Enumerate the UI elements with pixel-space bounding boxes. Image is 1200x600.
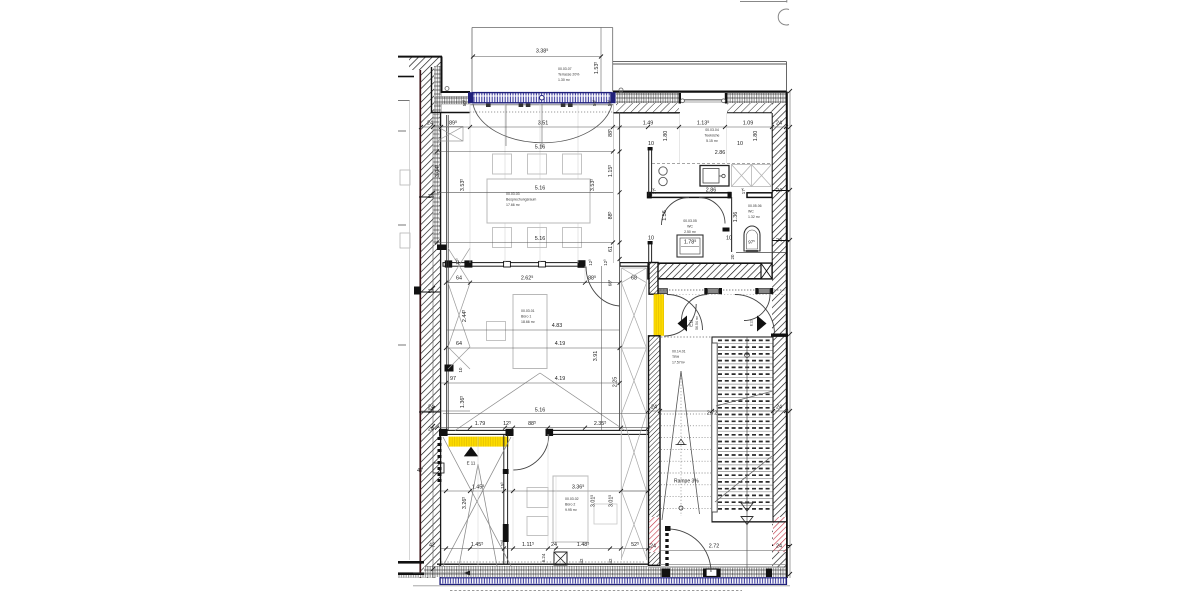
- svg-text:1.79: 1.79: [475, 421, 486, 427]
- svg-text:2.50 m²: 2.50 m²: [684, 230, 697, 234]
- svg-text:00.05.06: 00.05.06: [748, 204, 762, 208]
- svg-text:9.95 m²: 9.95 m²: [565, 508, 578, 512]
- svg-text:47: 47: [417, 468, 423, 474]
- svg-text:Besprechungsraum: Besprechungsraum: [506, 198, 536, 202]
- svg-text:5.16: 5.16: [535, 408, 546, 414]
- svg-text:1.32 m²: 1.32 m²: [748, 215, 761, 219]
- svg-text:E12: E12: [750, 320, 754, 326]
- svg-text:64: 64: [456, 341, 462, 347]
- svg-text:5.15 m²: 5.15 m²: [706, 139, 719, 143]
- svg-text:10: 10: [737, 141, 743, 147]
- svg-text:24: 24: [651, 405, 657, 411]
- svg-text:6.24: 6.24: [541, 553, 546, 562]
- svg-text:2.25: 2.25: [613, 377, 619, 388]
- svg-text:2.86: 2.86: [715, 150, 726, 156]
- svg-text:17.57m²: 17.57m²: [672, 361, 686, 365]
- svg-text:10: 10: [648, 141, 654, 147]
- svg-text:4.83: 4.83: [552, 323, 563, 329]
- svg-text:E 11: E 11: [467, 461, 476, 466]
- svg-text:10: 10: [458, 367, 463, 372]
- svg-text:56.54 m²: 56.54 m²: [695, 315, 699, 330]
- svg-text:42: 42: [579, 558, 584, 563]
- svg-text:00.03.01: 00.03.01: [521, 309, 535, 313]
- svg-text:00.03.02: 00.03.02: [565, 497, 579, 501]
- svg-text:1.56: 1.56: [662, 210, 668, 221]
- svg-text:Teeküche: Teeküche: [705, 134, 720, 138]
- svg-text:24: 24: [776, 405, 782, 411]
- svg-text:E11: E11: [689, 319, 694, 327]
- svg-text:97: 97: [450, 376, 456, 382]
- svg-text:42: 42: [429, 543, 435, 549]
- svg-text:24: 24: [776, 544, 782, 550]
- svg-text:3.91: 3.91: [593, 351, 599, 362]
- svg-text:24: 24: [427, 121, 433, 127]
- svg-text:00.03.05: 00.03.05: [683, 219, 697, 223]
- svg-text:5.16: 5.16: [535, 145, 546, 151]
- svg-text:WC: WC: [687, 225, 693, 229]
- svg-text:10: 10: [648, 236, 654, 242]
- svg-text:TRH: TRH: [672, 355, 680, 359]
- svg-text:17.66 m²: 17.66 m²: [506, 203, 521, 207]
- svg-text:64: 64: [456, 276, 462, 282]
- svg-text:24: 24: [551, 542, 557, 548]
- svg-text:1.36: 1.36: [733, 212, 739, 223]
- svg-text:24: 24: [776, 238, 782, 244]
- svg-text:24: 24: [776, 121, 782, 127]
- svg-text:00.03.07: 00.03.07: [558, 67, 572, 71]
- svg-text:Büro 1: Büro 1: [521, 315, 531, 319]
- svg-text:2.86: 2.86: [706, 188, 717, 194]
- svg-text:5.16: 5.16: [535, 186, 546, 192]
- svg-text:1.80: 1.80: [753, 131, 759, 142]
- svg-text:10: 10: [726, 236, 732, 242]
- svg-text:1.09: 1.09: [743, 121, 754, 127]
- svg-text:2.72: 2.72: [709, 544, 720, 550]
- svg-text:68: 68: [631, 276, 637, 282]
- svg-text:5.16: 5.16: [535, 236, 546, 242]
- svg-text:00.03.03: 00.03.03: [506, 192, 520, 196]
- svg-text:4.19: 4.19: [555, 341, 566, 347]
- svg-text:1.30 m²: 1.30 m²: [558, 78, 571, 82]
- svg-text:24: 24: [428, 194, 434, 200]
- svg-text:WC: WC: [748, 210, 754, 214]
- svg-text:Büro 2: Büro 2: [565, 503, 575, 507]
- svg-text:24: 24: [428, 409, 434, 415]
- svg-text:1.49: 1.49: [643, 121, 654, 127]
- svg-text:4.19: 4.19: [555, 376, 566, 382]
- svg-text:18.66 m²: 18.66 m²: [521, 320, 536, 324]
- svg-text:Terrasse 20%: Terrasse 20%: [558, 73, 579, 77]
- svg-text:42: 42: [608, 558, 613, 563]
- svg-text:3.51: 3.51: [538, 121, 549, 127]
- svg-text:1.80: 1.80: [663, 131, 669, 142]
- svg-text:24: 24: [650, 544, 656, 550]
- svg-text:24: 24: [428, 427, 434, 433]
- svg-text:Rampe 3%: Rampe 3%: [674, 479, 699, 485]
- svg-text:00.14.01: 00.14.01: [672, 350, 686, 354]
- svg-text:61: 61: [608, 246, 614, 252]
- svg-text:24: 24: [428, 289, 434, 295]
- svg-text:00.03.04: 00.03.04: [705, 128, 719, 132]
- svg-text:24: 24: [776, 188, 782, 194]
- svg-text:20: 20: [730, 254, 735, 259]
- svg-text:2.72: 2.72: [707, 411, 718, 417]
